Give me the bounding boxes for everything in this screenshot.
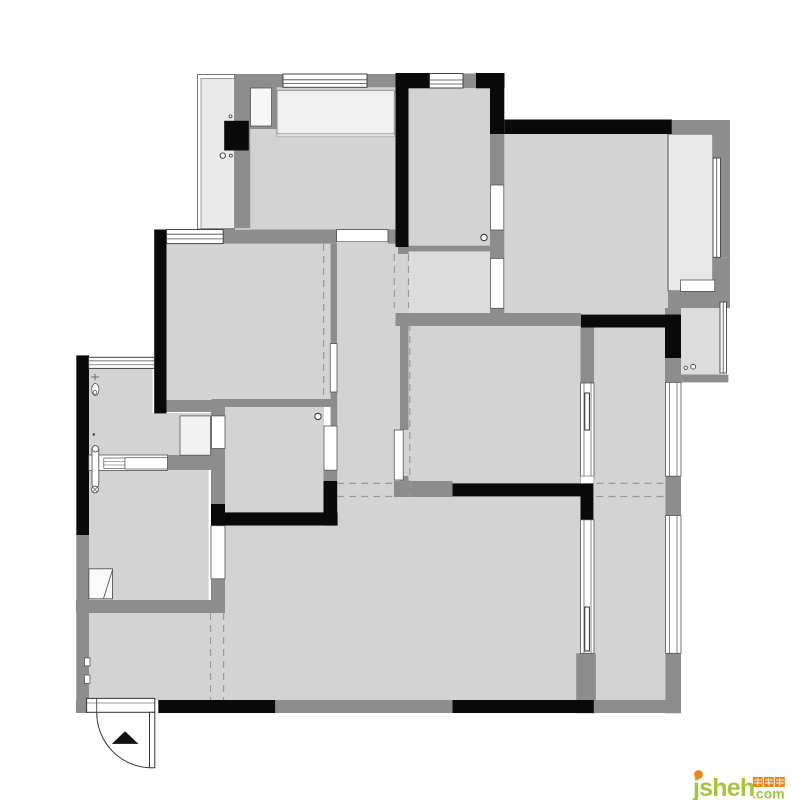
svg-text:jsheh: jsheh xyxy=(692,774,754,800)
svg-text:.com: .com xyxy=(752,786,785,800)
